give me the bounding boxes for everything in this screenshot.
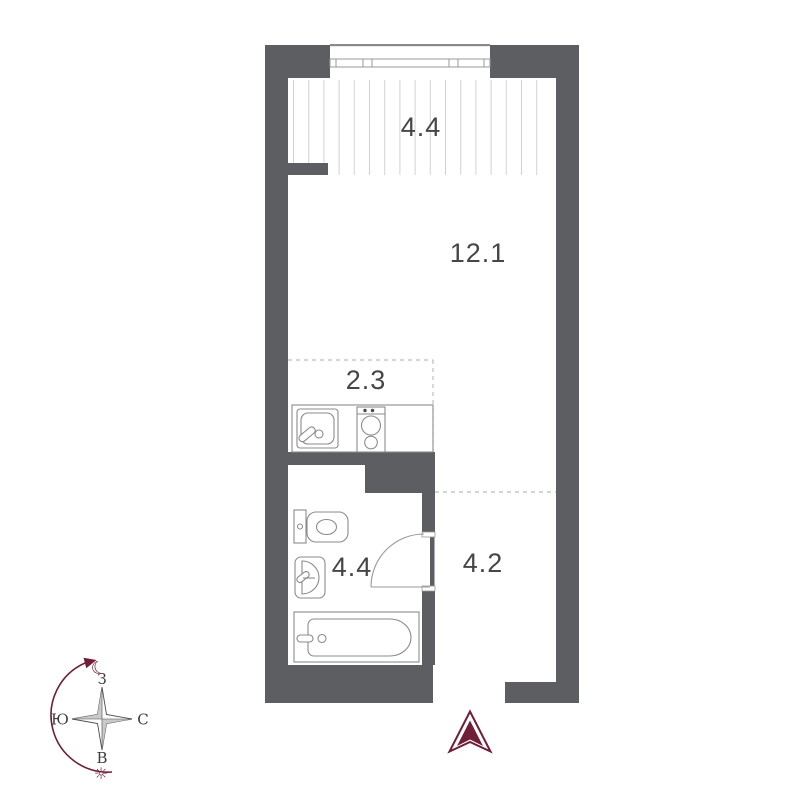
- toilet-icon: [294, 510, 348, 543]
- window-mullion: [449, 59, 458, 67]
- wall-bathroom-right-lower: [422, 591, 435, 665]
- window-mullion: [330, 59, 336, 67]
- floor-plan-canvas: 4.4 12.1 2.3 4.4 4.2 З С В Ю ☾ ☼: [0, 0, 800, 800]
- room-labels: 4.4 12.1 2.3 4.4 4.2: [332, 112, 507, 582]
- compass-star-facet: [72, 715, 102, 720]
- bathtub-icon: [294, 612, 419, 662]
- window-frame: [330, 59, 490, 67]
- stove-burner-large: [362, 416, 381, 435]
- bathroom-door-panel: [430, 537, 435, 587]
- kitchen-fixtures: [292, 405, 433, 452]
- sink-icon: [297, 409, 338, 448]
- bathtub-faucet: [297, 635, 313, 642]
- toilet-button: [298, 524, 303, 529]
- room-label-hallway: 4.2: [463, 548, 504, 578]
- stove-knob: [363, 409, 366, 412]
- wall-bottom-right: [505, 682, 579, 703]
- washbasin-icon: [295, 557, 325, 598]
- wall-kitchen: [288, 452, 435, 465]
- bathroom-fixtures: [294, 510, 419, 662]
- compass-star-facet: [98, 687, 103, 719]
- room-label-bathroom: 4.4: [332, 552, 373, 582]
- wall-bathroom-right-upper: [422, 493, 435, 533]
- wall-left: [265, 45, 288, 703]
- compass: З С В Ю ☾ ☼: [51, 656, 149, 783]
- room-label-kitchen: 2.3: [346, 365, 387, 395]
- door-swing-arc: [371, 534, 424, 587]
- wall-right: [556, 45, 579, 685]
- sink-drain: [315, 430, 323, 438]
- compass-star: [72, 687, 132, 750]
- compass-star-facet: [102, 719, 132, 724]
- stove-icon: [357, 407, 385, 452]
- wall-top-left: [265, 45, 330, 78]
- room-label-balcony: 4.4: [401, 112, 442, 142]
- balcony-window: [330, 44, 490, 67]
- room-label-living: 12.1: [450, 238, 507, 268]
- balcony-outer-edge: [330, 44, 490, 46]
- stove-burner-small: [365, 436, 378, 449]
- moon-icon: ☾: [88, 656, 110, 681]
- toilet-seat: [317, 520, 337, 535]
- stove-knob: [371, 409, 374, 412]
- floor-plan-page: 4.4 12.1 2.3 4.4 4.2 З С В Ю ☾ ☼: [0, 0, 800, 800]
- wall-balcony-jut: [288, 163, 328, 175]
- bathroom-door: [371, 532, 435, 591]
- wall-bottom-left: [265, 665, 433, 703]
- sun-icon: ☼: [94, 764, 108, 783]
- window-mullion: [484, 59, 490, 67]
- wall-bathroom-corner: [365, 465, 435, 493]
- entrance-arrow-logo: [450, 712, 491, 752]
- compass-letter-right: С: [137, 711, 148, 729]
- window-mullion: [363, 59, 372, 67]
- compass-letter-left: Ю: [51, 711, 69, 729]
- compass-star-facet: [102, 719, 107, 750]
- bathtub-drain: [318, 635, 326, 643]
